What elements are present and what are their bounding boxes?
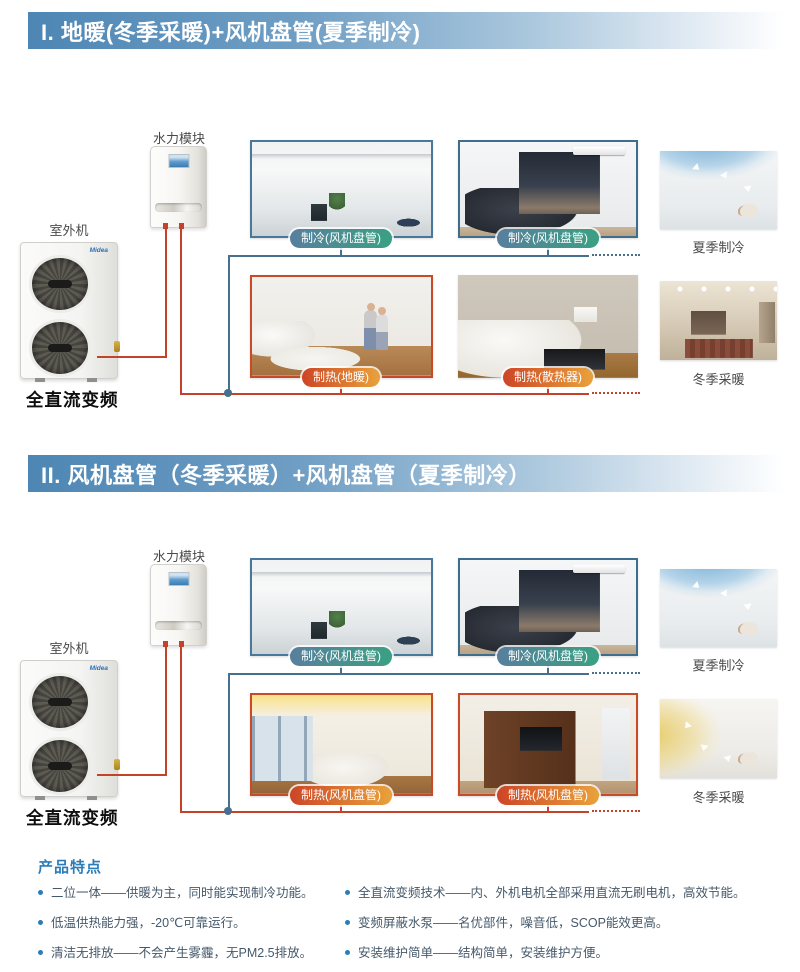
heating-pipe <box>97 356 167 358</box>
cooling-pipe <box>228 673 230 813</box>
cooling-pipe-dotted <box>592 672 640 674</box>
fan-hub <box>48 762 72 770</box>
cooling-fancoil-tag: 制冷(风机盘管) <box>290 229 392 248</box>
feature-item: 变频屏蔽水泵——名优部件，噪音低，SCOP能效更高。 <box>345 912 668 931</box>
heating-pipe <box>180 811 589 813</box>
product-features: 产品特点 二位一体——供暖为主，同时能实现制冷功能。 低温供热能力强，-20℃可… <box>0 850 800 972</box>
airflow-arrow-icon <box>692 581 702 591</box>
heating-pipe <box>165 646 167 776</box>
feature-item: 清洁无排放——不会产生雾霾，无PM2.5排放。 <box>38 942 312 961</box>
feature-item: 全直流变频技术——内、外机电机全部采用直流无刷电机，高效节能。 <box>345 882 746 901</box>
heating-pipe-dotted <box>592 392 640 394</box>
summer-cooling-caption: 夏季制冷 <box>660 655 777 674</box>
feature-item: 安装维护简单——结构简单，安装维护方便。 <box>345 942 608 961</box>
feature-text: 全直流变频技术——内、外机电机全部采用直流无刷电机，高效节能。 <box>358 886 746 900</box>
heating-pipe <box>97 774 167 776</box>
room-photo-fancoil-heating-left <box>250 693 433 796</box>
refrigerant-valve <box>114 759 120 770</box>
feature-text: 清洁无排放——不会产生雾霾，无PM2.5排放。 <box>51 946 312 960</box>
cooling-pipe-dotted <box>592 254 640 256</box>
fan-hub <box>48 280 72 288</box>
cooling-pipe <box>228 673 589 675</box>
dc-inverter-caption: 全直流变频 <box>26 805 119 830</box>
fan-hub <box>48 698 72 706</box>
fan-hub <box>48 344 72 352</box>
features-title: 产品特点 <box>38 856 102 877</box>
heating-pipe <box>165 228 167 358</box>
room-photo-cooling-right <box>458 558 638 656</box>
airflow-arrow-icon <box>699 744 708 751</box>
heating-floor-tag: 制热(地暖) <box>302 368 380 387</box>
hydraulic-module-label: 水力模块 <box>148 546 210 565</box>
unit-foot <box>35 378 45 382</box>
winter-heating-illustration <box>660 699 777 778</box>
heating-pipe-dotted <box>592 810 640 812</box>
outdoor-unit-label: 室外机 <box>20 220 118 239</box>
winter-heating-caption: 冬季采暖 <box>660 369 777 388</box>
module-panel-groove <box>155 203 202 212</box>
cooling-pipe <box>228 255 230 395</box>
airflow-arrow-icon <box>720 589 730 598</box>
ceiling-fancoil-unit <box>573 565 626 573</box>
summer-cooling-illustration <box>660 151 777 229</box>
cooling-fancoil-tag: 制冷(风机盘管) <box>497 647 599 666</box>
winter-heating-photo <box>660 281 777 360</box>
heating-pipe <box>180 228 182 395</box>
brochure-page: I. 地暖(冬季采暖)+风机盘管(夏季制冷) 水力模块 室外机 Midea 全直… <box>0 0 800 972</box>
hydraulic-module <box>150 146 207 228</box>
pipe-junction-dot <box>224 807 232 815</box>
module-port <box>163 223 168 229</box>
feature-text: 二位一体——供暖为主，同时能实现制冷功能。 <box>51 886 314 900</box>
airflow-arrow-icon <box>724 755 733 763</box>
cooling-pipe <box>228 255 589 257</box>
dc-inverter-caption: 全直流变频 <box>26 387 119 412</box>
summer-cooling-illustration <box>660 569 777 647</box>
section-floor-heating: I. 地暖(冬季采暖)+风机盘管(夏季制冷) 水力模块 室外机 Midea 全直… <box>0 0 800 443</box>
heating-fancoil-tag: 制热(风机盘管) <box>290 786 392 805</box>
unit-foot <box>87 796 97 800</box>
summer-cooling-caption: 夏季制冷 <box>660 237 777 256</box>
outdoor-unit: Midea <box>20 660 118 797</box>
airflow-arrow-icon <box>692 163 702 173</box>
heating-pipe <box>180 646 182 813</box>
midea-logo: Midea <box>90 665 108 672</box>
room-photo-floor-heating <box>250 275 433 378</box>
feature-item: 低温供热能力强，-20℃可靠运行。 <box>38 912 246 931</box>
refrigerant-valve <box>114 341 120 352</box>
pipe-junction-dot <box>224 389 232 397</box>
hydraulic-module <box>150 564 207 646</box>
module-port <box>179 223 184 229</box>
section-1-header: I. 地暖(冬季采暖)+风机盘管(夏季制冷) <box>28 12 800 49</box>
fan-grille-icon <box>29 319 91 377</box>
feature-item: 二位一体——供暖为主，同时能实现制冷功能。 <box>38 882 314 901</box>
outdoor-unit-label: 室外机 <box>20 638 118 657</box>
person <box>740 204 758 217</box>
feature-text: 安装维护简单——结构简单，安装维护方便。 <box>358 946 608 960</box>
room-photo-cooling-left <box>250 140 433 238</box>
person <box>376 314 388 350</box>
ceiling-fancoil-unit <box>573 147 626 155</box>
room-photo-fancoil-heating-right <box>458 693 638 796</box>
fan-grille-icon <box>29 255 91 313</box>
winter-heating-caption: 冬季采暖 <box>660 787 777 806</box>
airflow-arrow-icon <box>682 721 692 731</box>
person <box>740 752 758 765</box>
unit-foot <box>35 796 45 800</box>
heating-pipe <box>180 393 589 395</box>
fan-grille-icon <box>29 737 91 795</box>
feature-text: 变频屏蔽水泵——名优部件，噪音低，SCOP能效更高。 <box>358 916 668 930</box>
unit-foot <box>87 378 97 382</box>
module-panel-groove <box>155 621 202 630</box>
module-display <box>168 154 189 168</box>
room-photo-radiator <box>458 275 638 378</box>
airflow-arrow-icon <box>744 603 753 610</box>
room-photo-cooling-right <box>458 140 638 238</box>
outdoor-unit: Midea <box>20 242 118 379</box>
heating-fancoil-tag: 制热(风机盘管) <box>497 786 599 805</box>
section-2-header: II. 风机盘管（冬季采暖）+风机盘管（夏季制冷） <box>28 455 800 492</box>
section-fancoil-heating: II. 风机盘管（冬季采暖）+风机盘管（夏季制冷） 水力模块 室外机 Midea… <box>0 418 800 853</box>
hydraulic-module-label: 水力模块 <box>148 128 210 147</box>
midea-logo: Midea <box>90 247 108 254</box>
fan-grille-icon <box>29 673 91 731</box>
heating-radiator-tag: 制热(散热器) <box>503 368 593 387</box>
module-port <box>163 641 168 647</box>
airflow-arrow-icon <box>744 185 753 192</box>
room-photo-cooling-left <box>250 558 433 656</box>
module-display <box>168 572 189 586</box>
cooling-fancoil-tag: 制冷(风机盘管) <box>497 229 599 248</box>
feature-text: 低温供热能力强，-20℃可靠运行。 <box>51 916 246 930</box>
airflow-arrow-icon <box>720 171 730 180</box>
person <box>740 622 758 635</box>
cooling-fancoil-tag: 制冷(风机盘管) <box>290 647 392 666</box>
module-port <box>179 641 184 647</box>
